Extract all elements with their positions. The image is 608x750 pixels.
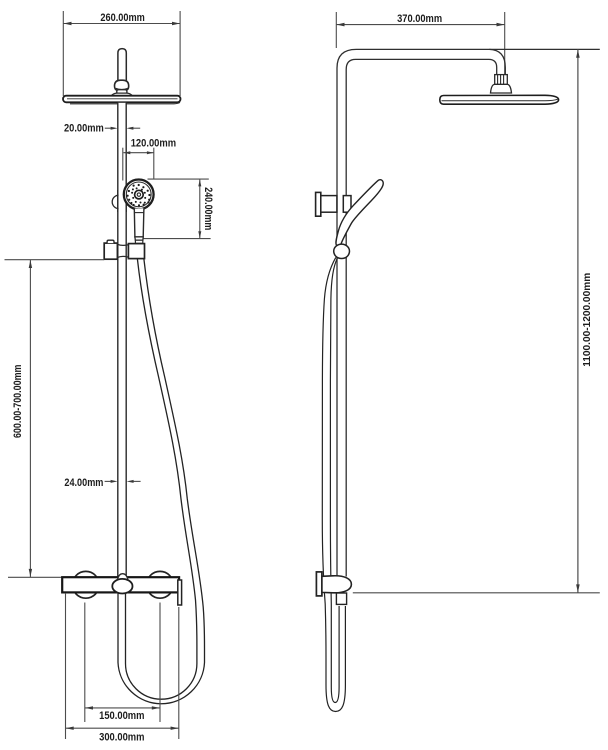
svg-text:600.00-700.00mm: 600.00-700.00mm — [12, 364, 24, 438]
svg-text:20.00mm: 20.00mm — [64, 123, 104, 135]
svg-text:300.00mm: 300.00mm — [99, 732, 145, 744]
svg-text:24.00mm: 24.00mm — [64, 477, 103, 489]
svg-text:260.00mm: 260.00mm — [100, 12, 145, 24]
svg-text:240.00mm: 240.00mm — [202, 187, 214, 230]
svg-text:150.00mm: 150.00mm — [99, 710, 145, 722]
svg-text:370.00mm: 370.00mm — [397, 13, 442, 25]
svg-text:1100.00-1200.00mm: 1100.00-1200.00mm — [581, 273, 593, 367]
